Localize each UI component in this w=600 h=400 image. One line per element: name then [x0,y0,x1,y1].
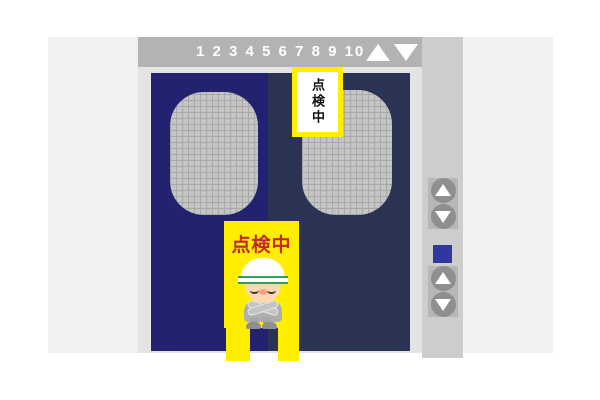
call-up-icon [435,272,451,284]
indicator-down-triangle-icon [394,44,418,61]
hanging-sign-text: 点検中 [311,78,324,126]
standing-sign-leg-right [278,327,299,361]
indicator-up-triangle-icon [366,44,390,61]
call-button-plate-lower [428,266,458,317]
call-up-button[interactable] [431,178,456,203]
standing-sign-text: 点検中 [224,230,299,257]
hanging-inspection-sign: 点検中 [292,67,343,137]
elevator-inspection-illustration: 1 2 3 4 5 6 7 8 9 10 点検中 点検中 [0,0,600,400]
call-down-button-lower[interactable] [431,292,456,317]
call-down-icon [435,299,451,311]
call-up-button-lower[interactable] [431,266,456,291]
call-up-icon [435,184,451,196]
worker-eye-left [250,287,259,294]
worker-helmet-band [238,276,288,284]
worker-shoe-right [262,322,277,329]
floor-numbers: 1 2 3 4 5 6 7 8 9 10 [196,37,365,67]
standing-sign-leg-left [226,327,250,361]
call-down-button[interactable] [431,204,456,229]
call-button-plate-upper [428,178,458,229]
worker-nose [259,289,267,295]
worker-eye-right [267,287,276,294]
door-window-left [170,92,258,215]
worker-shoe-left [246,322,261,329]
call-down-icon [435,211,451,223]
floor-name-plate [433,245,452,263]
floor-indicator-bar: 1 2 3 4 5 6 7 8 9 10 [138,37,422,67]
